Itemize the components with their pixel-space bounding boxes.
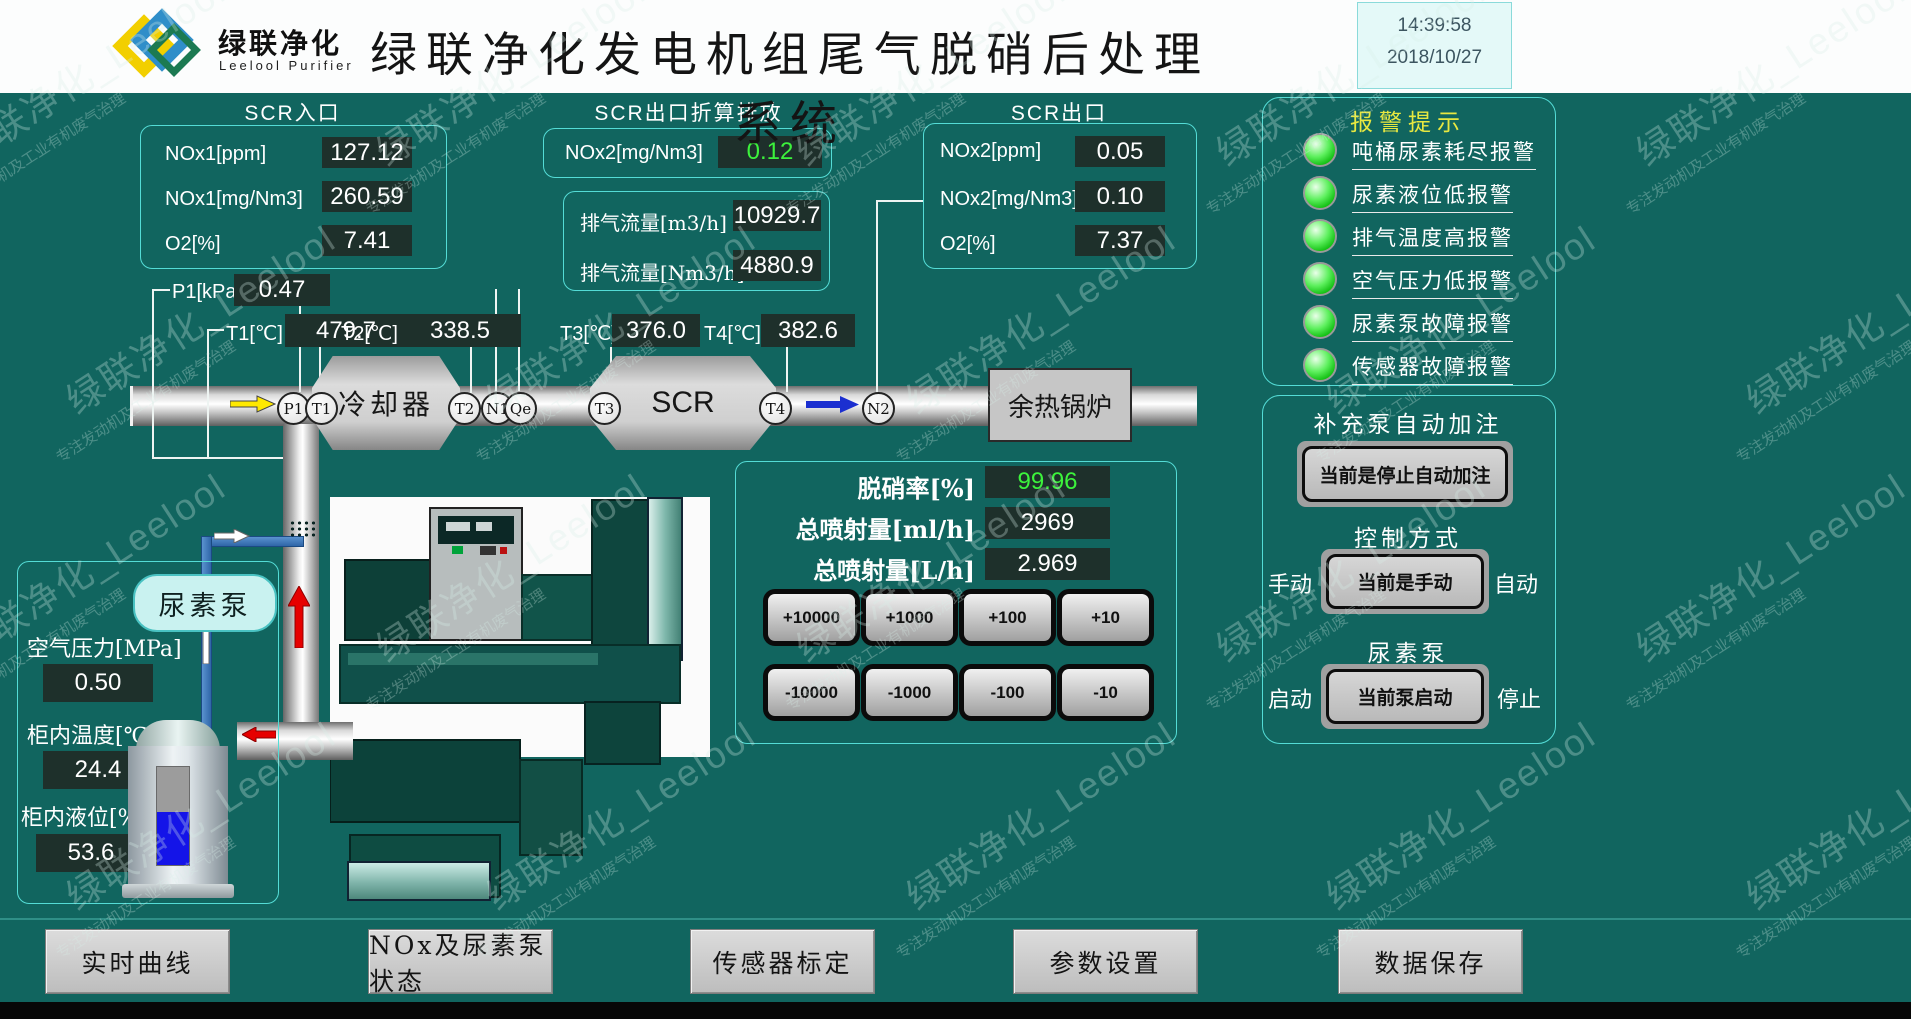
alarm-lamp	[1303, 262, 1337, 296]
flow-arrow-blue-icon	[806, 396, 860, 413]
leader-line	[152, 457, 283, 459]
nav-button-nox-pump-status[interactable]: NOx及尿素泵状态	[368, 929, 553, 994]
company-logo-icon	[112, 6, 212, 88]
sensor-tag-t2: T2	[448, 392, 481, 425]
watermark-text: 绿联净化_Leelool专注发动机及工业有机废气治理	[1734, 209, 1911, 445]
adjust-button-minus-100[interactable]: -100	[959, 664, 1056, 721]
logo-text-cn: 绿联净化	[218, 22, 342, 62]
adjust-button-plus-1000[interactable]: +1000	[861, 589, 958, 646]
logo-text-en: Leelool Purifier	[219, 58, 354, 73]
clock-box: 14:39:58 2018/10/27	[1357, 2, 1512, 89]
t4-label: T4[℃]	[704, 321, 761, 346]
leader-line	[470, 347, 472, 393]
injection-row-value: 99.96	[985, 466, 1110, 498]
injection-row-label: 总喷射量[L/h]	[765, 551, 975, 586]
nav-button-realtime-curve[interactable]: 实时曲线	[45, 929, 230, 994]
flow-arrow-red-up-icon	[288, 586, 310, 648]
leader-line	[786, 347, 788, 392]
hmi-screen: 绿联净化 Leelool Purifier 绿联净化发电机组尾气脱硝后处理系统 …	[0, 0, 1911, 1019]
nav-button-data-save[interactable]: 数据保存	[1338, 929, 1523, 994]
alarm-lamp	[1303, 219, 1337, 253]
exhaust-riser-pipe	[283, 424, 319, 746]
leader-line	[207, 329, 224, 331]
sensor-tag-qe: Qe	[504, 392, 537, 425]
leader-line	[876, 200, 878, 392]
leader-line	[207, 329, 209, 457]
injection-row-label: 脱硝率[%]	[765, 469, 975, 504]
waste-heat-boiler-box: 余热锅炉	[988, 368, 1132, 442]
exhaust-flow-label: 排气流量[Nm3/h]	[580, 257, 744, 286]
watermark-text: 绿联净化_Leelool专注发动机及工业有机废气治理	[1624, 457, 1911, 693]
generator-graphic	[330, 497, 710, 905]
pump-section-title: 尿素泵	[1262, 634, 1554, 668]
sensor-tag-t4: T4	[759, 392, 792, 425]
alarm-item-label: 排气温度高报警	[1352, 222, 1513, 256]
sensor-tag-n2: N2	[862, 392, 895, 425]
pump-start-label: 启动	[1268, 682, 1312, 714]
flow-arrow-yellow-icon	[230, 395, 276, 413]
t3-label: T3[℃]	[560, 321, 617, 346]
injection-row-value: 2969	[985, 507, 1110, 539]
injection-row-label: 总喷射量[ml/h]	[765, 510, 975, 545]
sensor-tag-t1: T1	[305, 392, 338, 425]
control-mode-button[interactable]: 当前是手动	[1321, 549, 1489, 614]
bottom-strip	[0, 1002, 1911, 1019]
alarm-lamp	[1303, 133, 1337, 167]
p1-label: P1[kPa]	[172, 281, 242, 304]
refill-section-title: 补充泵自动加注	[1262, 405, 1554, 439]
nav-separator	[0, 918, 1911, 920]
alarm-panel-title: 报警提示	[1262, 103, 1554, 137]
alarm-lamp	[1303, 305, 1337, 339]
header-bar: 绿联净化 Leelool Purifier 绿联净化发电机组尾气脱硝后处理系统 …	[0, 0, 1911, 93]
injection-row-value: 2.969	[985, 548, 1110, 580]
clock-time: 14:39:58	[1358, 15, 1511, 37]
scr-inlet-row-label: O2[%]	[165, 233, 221, 256]
cabinet-row-label: 空气压力[MPa]	[27, 631, 182, 663]
leader-line	[152, 289, 170, 291]
pump-stop-label: 停止	[1497, 682, 1541, 714]
t2-value: 338.5	[399, 314, 521, 347]
mode-auto-label: 自动	[1494, 567, 1538, 599]
clock-date: 2018/10/27	[1358, 47, 1511, 69]
t2-label: T2[℃]	[341, 321, 398, 346]
t1-label: T1[℃]	[226, 321, 283, 346]
sensor-tag-t3: T3	[588, 392, 621, 425]
alarm-lamp	[1303, 348, 1337, 382]
exhaust-flow-label: 排气流量[m3/h]	[580, 207, 727, 236]
adjust-button-plus-10000[interactable]: +10000	[763, 589, 860, 646]
adjust-button-plus-10[interactable]: +10	[1057, 589, 1154, 646]
page-title: 绿联净化发电机组尾气脱硝后处理系统	[350, 16, 1230, 154]
alarm-item-label: 传感器故障报警	[1352, 351, 1513, 385]
watermark-text: 绿联净化_Leelool专注发动机及工业有机废气治理	[1734, 705, 1911, 941]
alarm-item-label: 空气压力低报警	[1352, 265, 1513, 299]
urea-tank-base	[122, 884, 234, 898]
leader-line	[152, 289, 154, 459]
refill-mode-button[interactable]: 当前是停止自动加注	[1297, 441, 1513, 507]
tank-level-fill	[157, 812, 189, 865]
nav-button-parameter-settings[interactable]: 参数设置	[1013, 929, 1198, 994]
cabinet-row-value: 0.50	[43, 664, 153, 702]
urea-pump-button[interactable]: 当前泵启动	[1321, 664, 1489, 729]
t3-value: 376.0	[612, 314, 700, 347]
adjust-button-plus-100[interactable]: +100	[959, 589, 1056, 646]
adjust-button-minus-10000[interactable]: -10000	[763, 664, 860, 721]
exhaust-flow-value: 4880.9	[733, 250, 821, 281]
adjust-button-minus-10[interactable]: -10	[1057, 664, 1154, 721]
alarm-item-label: 吨桶尿素耗尽报警	[1352, 136, 1536, 170]
injection-nozzle-icon	[289, 520, 315, 538]
scr-outlet-row-label: NOx2[mg/Nm3]	[940, 188, 1078, 211]
mode-manual-label: 手动	[1268, 567, 1312, 599]
scr-inlet-row-label: NOx1[mg/Nm3]	[165, 188, 303, 211]
nav-button-sensor-calibration[interactable]: 传感器标定	[690, 929, 875, 994]
alarm-lamp	[1303, 176, 1337, 210]
adjust-button-minus-1000[interactable]: -1000	[861, 664, 958, 721]
alarm-item-label: 尿素液位低报警	[1352, 179, 1513, 213]
scr-outlet-row-label: O2[%]	[940, 233, 996, 256]
leader-line	[876, 200, 923, 202]
t4-value: 382.6	[761, 314, 855, 347]
scr-outlet-row-value: 7.37	[1075, 225, 1165, 256]
scr-outlet-row-value: 0.10	[1075, 181, 1165, 212]
p1-value: 0.47	[234, 274, 330, 306]
urea-tank-level-gauge	[156, 766, 190, 866]
scr-inlet-row-label: NOx1[ppm]	[165, 143, 266, 166]
alarm-item-label: 尿素泵故障报警	[1352, 308, 1513, 342]
exhaust-flow-value: 10929.7	[733, 200, 821, 231]
scr-inlet-row-value: 7.41	[322, 225, 412, 256]
scr-inlet-row-value: 260.59	[322, 181, 412, 212]
control-mode-title: 控制方式	[1262, 519, 1554, 553]
urea-flow-arrow-right-icon	[214, 529, 250, 543]
